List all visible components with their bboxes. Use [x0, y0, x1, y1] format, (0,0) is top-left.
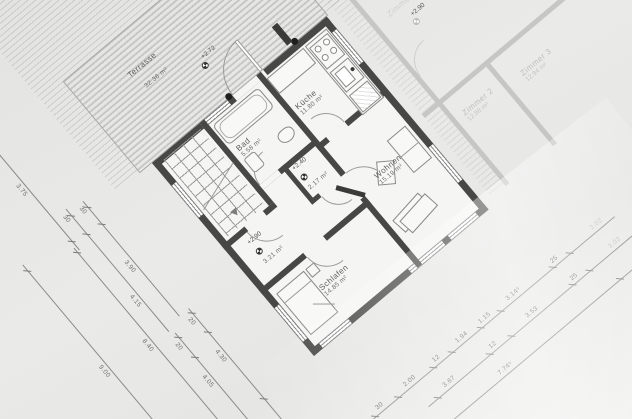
- dim-line: [0, 119, 80, 250]
- dim-line: [428, 233, 632, 407]
- dim-tick: [371, 416, 379, 418]
- neighbor-level-label: +2.90: [409, 2, 426, 18]
- dim-label-367: 3.67: [441, 374, 456, 389]
- dim-label-375: 3.75: [14, 183, 29, 198]
- dim-tick: [191, 356, 199, 358]
- neighbor-level-marker-icon: [411, 17, 421, 27]
- blueprint-photo: Terrasse 32.36 m² +2.72 4.30 20 4.05 20 …: [0, 0, 632, 419]
- dim-label-415: 4.15: [128, 293, 143, 308]
- dim-label-405: 4.05: [201, 374, 216, 389]
- dim-tick: [98, 223, 106, 225]
- dim-label-302: 3.02: [607, 236, 622, 251]
- bed-fold-line: [313, 304, 335, 305]
- dim-line: [74, 248, 261, 419]
- dim-tick: [23, 270, 31, 272]
- dim-tick: [429, 367, 437, 369]
- dim-line: [175, 333, 279, 419]
- dim-label-430: 4.30: [213, 348, 228, 363]
- dim-label-194: 1.94: [454, 330, 469, 345]
- dim-tick: [448, 351, 456, 353]
- dim-tick: [394, 396, 402, 398]
- dim-tick: [188, 312, 196, 314]
- dim-tick: [73, 252, 81, 254]
- dim-line: [66, 209, 170, 332]
- dim-tick: [585, 270, 593, 272]
- dim-tick: [549, 266, 557, 268]
- dim-label-202: 2.02: [589, 217, 604, 232]
- dim-tick: [260, 398, 268, 400]
- dim-label-200: 2.00: [402, 374, 417, 389]
- dim-tick: [477, 327, 485, 329]
- neighbor-zimmer2-label: Zimmer 2 12.98 m²: [460, 86, 499, 123]
- dim-label-353: 3.53: [524, 305, 539, 320]
- dim-label-840: 8.40: [141, 338, 156, 353]
- dim-tick: [434, 397, 442, 399]
- dim-label-115: 1.15: [477, 311, 492, 326]
- dim-tick: [497, 310, 505, 312]
- dim-label-900: 9.00: [97, 364, 112, 379]
- dim-tick: [507, 335, 515, 337]
- dim-tick: [486, 353, 494, 355]
- dim-label-390: 3.90: [123, 259, 138, 274]
- dim-tick: [616, 278, 624, 280]
- neighbor-zimmer3-label: Zimmer 3 12.94 m²: [519, 47, 558, 84]
- dim-tick: [569, 284, 577, 286]
